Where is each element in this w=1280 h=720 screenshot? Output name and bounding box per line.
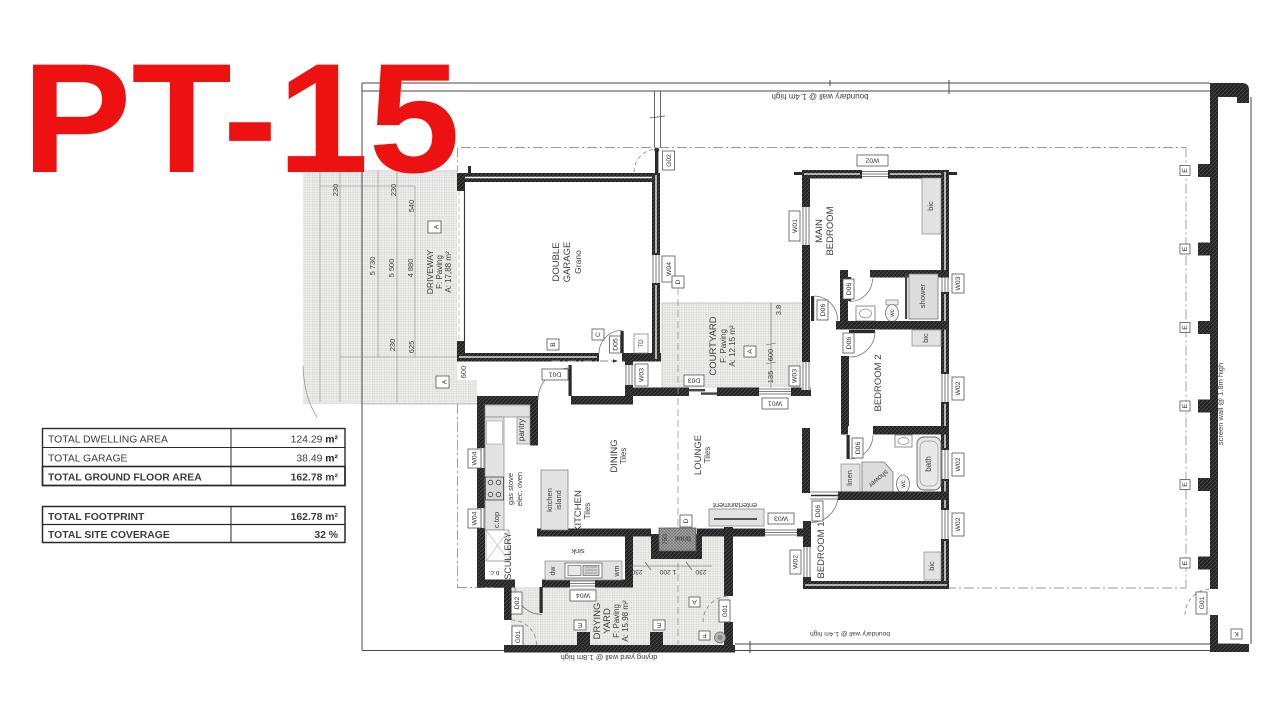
- svg-text:E: E: [577, 621, 582, 628]
- svg-text:TOTAL DWELLING AREA: TOTAL DWELLING AREA: [48, 435, 168, 446]
- svg-text:W04: W04: [471, 451, 478, 465]
- svg-text:D02: D02: [514, 597, 521, 610]
- svg-text:screen wall @ 1.8m high: screen wall @ 1.8m high: [1216, 363, 1225, 445]
- svg-text:TOTAL SITE COVERAGE: TOTAL SITE COVERAGE: [48, 530, 170, 541]
- svg-text:A: A: [433, 224, 440, 229]
- svg-text:COURTYARD: COURTYARD: [708, 316, 719, 375]
- svg-text:W03: W03: [774, 515, 788, 522]
- svg-text:F: Paving: F: Paving: [435, 255, 444, 289]
- svg-text:E: E: [1182, 560, 1189, 565]
- svg-text:W04: W04: [576, 592, 590, 599]
- svg-text:BEDROOM 2: BEDROOM 2: [873, 354, 884, 411]
- svg-text:Tiles: Tiles: [583, 503, 592, 520]
- svg-text:230: 230: [695, 568, 706, 575]
- svg-text:Grano: Grano: [573, 250, 583, 274]
- svg-text:A: A: [441, 379, 448, 384]
- svg-text:B: B: [550, 342, 557, 347]
- svg-text:750: 750: [662, 534, 669, 545]
- svg-text:b.c.: b.c.: [488, 569, 499, 576]
- svg-text:600: 600: [459, 366, 468, 379]
- svg-text:DOUBLE: DOUBLE: [551, 242, 562, 281]
- svg-text:W02: W02: [865, 157, 879, 164]
- svg-text:island: island: [554, 490, 563, 510]
- svg-text:W04: W04: [471, 511, 478, 525]
- svg-text:D01: D01: [549, 371, 562, 378]
- svg-text:600: 600: [766, 349, 775, 362]
- svg-text:38.49 m²: 38.49 m²: [296, 454, 338, 465]
- svg-text:G01: G01: [1199, 596, 1206, 609]
- svg-text:230: 230: [388, 339, 397, 352]
- svg-text:5 730: 5 730: [368, 257, 377, 276]
- svg-text:entertainment: entertainment: [713, 501, 757, 510]
- svg-text:5 500: 5 500: [387, 259, 396, 278]
- svg-text:bic: bic: [926, 201, 935, 211]
- svg-text:G02: G02: [666, 154, 673, 167]
- svg-text:1 200: 1 200: [659, 568, 676, 575]
- svg-text:Tiles: Tiles: [703, 447, 712, 464]
- svg-text:W04: W04: [666, 262, 673, 276]
- svg-text:boundary wall @ 1.4m high: boundary wall @ 1.4m high: [810, 630, 890, 637]
- svg-text:Tiles: Tiles: [619, 448, 628, 465]
- svg-text:162.78 m²: 162.78 m²: [291, 512, 339, 523]
- svg-text:TD: TD: [638, 339, 645, 348]
- svg-text:E: E: [1182, 168, 1189, 173]
- svg-text:TOTAL GARAGE: TOTAL GARAGE: [48, 454, 128, 465]
- svg-text:124.29 m²: 124.29 m²: [291, 435, 339, 446]
- svg-text:linen: linen: [845, 470, 854, 486]
- svg-text:A: A: [747, 349, 754, 354]
- svg-text:W03: W03: [791, 369, 798, 383]
- svg-text:MAIN: MAIN: [814, 219, 825, 243]
- svg-text:W01: W01: [792, 219, 799, 233]
- svg-text:bic: bic: [921, 333, 930, 343]
- svg-text:E: E: [1182, 325, 1189, 330]
- svg-text:GARAGE: GARAGE: [562, 242, 573, 283]
- svg-text:D06: D06: [855, 442, 862, 455]
- svg-text:F: Paving: F: Paving: [719, 329, 728, 363]
- svg-text:W01: W01: [768, 400, 782, 407]
- svg-text:D06: D06: [846, 283, 853, 296]
- svg-text:G01: G01: [722, 604, 729, 617]
- svg-text:32 %: 32 %: [314, 530, 338, 541]
- svg-text:SCULLERY: SCULLERY: [503, 532, 513, 579]
- svg-text:pantry: pantry: [517, 419, 526, 441]
- svg-text:E: E: [1182, 403, 1189, 408]
- svg-text:shower: shower: [918, 283, 927, 308]
- svg-text:D06: D06: [820, 304, 827, 317]
- svg-text:PT-15: PT-15: [22, 32, 460, 206]
- svg-text:E: E: [656, 621, 661, 628]
- svg-text:sink: sink: [571, 547, 585, 556]
- svg-text:BEDROOM 1: BEDROOM 1: [816, 521, 827, 578]
- svg-text:c.top: c.top: [492, 512, 501, 528]
- svg-text:bath: bath: [924, 456, 933, 472]
- svg-text:4 880: 4 880: [406, 259, 415, 278]
- svg-text:E: E: [1182, 482, 1189, 487]
- svg-text:gas stove: gas stove: [506, 473, 515, 505]
- svg-text:D: D: [683, 518, 690, 523]
- svg-text:D: D: [675, 279, 682, 284]
- svg-text:wc: wc: [901, 480, 907, 488]
- svg-text:D06: D06: [815, 505, 822, 518]
- svg-text:W02: W02: [955, 381, 962, 395]
- svg-text:135: 135: [766, 371, 775, 384]
- svg-text:625: 625: [407, 341, 416, 354]
- svg-text:C: C: [595, 332, 602, 337]
- svg-text:kitchen: kitchen: [545, 488, 554, 512]
- svg-text:K: K: [1234, 630, 1239, 637]
- svg-text:230: 230: [631, 568, 642, 575]
- svg-text:wc: wc: [890, 309, 896, 317]
- svg-text:3.8: 3.8: [774, 305, 783, 315]
- svg-text:D05: D05: [612, 338, 619, 351]
- svg-text:F: F: [702, 632, 706, 639]
- svg-text:162.78 m²: 162.78 m²: [291, 473, 339, 484]
- svg-text:G01: G01: [515, 630, 522, 643]
- svg-text:DRIVEWAY: DRIVEWAY: [425, 249, 435, 294]
- svg-text:W03: W03: [955, 276, 962, 290]
- svg-text:A: 17,88 m²: A: 17,88 m²: [444, 251, 453, 293]
- svg-text:elec. oven: elec. oven: [515, 472, 524, 506]
- svg-text:wm: wm: [614, 565, 621, 577]
- svg-text:TOTAL FOOTPRINT: TOTAL FOOTPRINT: [48, 512, 145, 523]
- svg-text:D03: D03: [688, 377, 701, 384]
- svg-text:W03: W03: [638, 368, 645, 382]
- svg-text:E: E: [1182, 246, 1189, 251]
- svg-text:W02: W02: [955, 517, 962, 531]
- svg-text:TOTAL GROUND FLOOR AREA: TOTAL GROUND FLOOR AREA: [48, 473, 202, 484]
- svg-text:W02: W02: [792, 555, 799, 569]
- svg-text:A: A: [692, 598, 697, 605]
- svg-text:braai: braai: [675, 535, 691, 542]
- svg-text:bic: bic: [927, 561, 936, 571]
- svg-text:A: 15.98 m²: A: 15.98 m²: [621, 600, 630, 642]
- svg-text:W02: W02: [955, 457, 962, 471]
- svg-text:F: Paving: F: Paving: [612, 604, 621, 638]
- svg-text:A: 12.15 m²: A: 12.15 m²: [728, 325, 737, 367]
- svg-text:boundary wall @ 1.4m high: boundary wall @ 1.4m high: [771, 92, 868, 101]
- svg-text:BEDROOM: BEDROOM: [825, 206, 836, 255]
- svg-text:drying yard wall @ 1.8m high: drying yard wall @ 1.8m high: [561, 653, 658, 662]
- svg-text:D06: D06: [846, 337, 853, 350]
- svg-text:dw: dw: [550, 566, 557, 576]
